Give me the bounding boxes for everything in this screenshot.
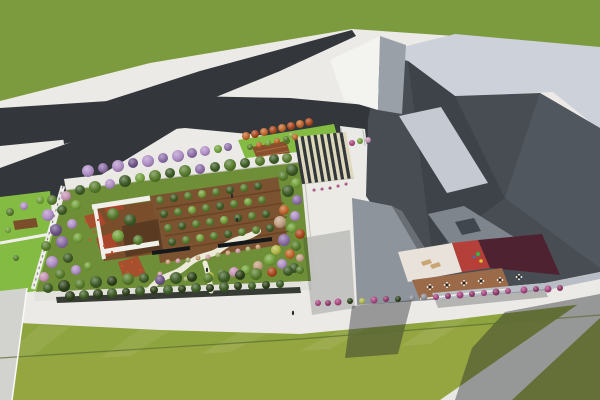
tree	[345, 183, 348, 186]
tree	[224, 159, 236, 171]
playground-item	[479, 259, 483, 263]
tree	[13, 255, 19, 261]
tree	[119, 175, 131, 187]
tree	[296, 266, 304, 274]
tree	[135, 173, 145, 183]
tree	[198, 190, 206, 198]
tree	[267, 267, 277, 277]
tree	[329, 187, 332, 190]
tree	[156, 196, 164, 204]
table-chair	[448, 284, 450, 286]
tree	[210, 232, 218, 240]
tree	[107, 288, 117, 298]
tree	[325, 300, 331, 306]
tree	[247, 144, 253, 150]
tree	[170, 194, 178, 202]
table-chair	[501, 279, 503, 281]
tree	[347, 298, 353, 304]
tree	[170, 272, 182, 284]
person-marker	[206, 268, 208, 272]
tree	[216, 253, 221, 258]
tree	[246, 247, 251, 252]
tree	[240, 184, 248, 192]
tree	[75, 279, 85, 289]
tree	[61, 191, 71, 201]
tree	[165, 168, 175, 178]
tree	[176, 259, 181, 264]
tree	[150, 286, 158, 294]
flower-dot	[85, 221, 87, 223]
tree	[71, 265, 81, 275]
tree	[234, 282, 242, 290]
tree	[216, 202, 224, 210]
tree	[248, 212, 256, 220]
tree	[236, 249, 241, 254]
tree	[105, 179, 115, 189]
flower-dot	[121, 265, 123, 267]
tree	[42, 209, 54, 221]
tree	[58, 280, 70, 292]
tree	[200, 146, 210, 156]
tree	[469, 291, 475, 297]
flower-dot	[111, 251, 113, 253]
table-chair	[463, 284, 465, 286]
tree	[107, 276, 117, 286]
tree	[255, 156, 265, 166]
tree	[266, 224, 274, 232]
table	[480, 280, 483, 283]
tree	[158, 153, 168, 163]
tree	[93, 289, 103, 299]
tree	[313, 189, 316, 192]
tree	[265, 140, 271, 146]
tree	[282, 185, 294, 197]
tree	[133, 235, 143, 245]
tree	[224, 143, 232, 151]
tree	[278, 171, 288, 181]
tree	[409, 295, 415, 301]
tree	[260, 128, 268, 136]
table-chair	[518, 278, 520, 280]
table-chair	[497, 279, 499, 281]
tree	[226, 186, 234, 194]
flower-dot	[103, 245, 105, 247]
tree	[149, 170, 161, 182]
tree	[186, 258, 191, 263]
tree	[481, 290, 487, 296]
tree	[172, 150, 184, 162]
tree	[242, 132, 250, 140]
tree	[359, 298, 365, 304]
tree	[219, 282, 229, 292]
tree	[287, 122, 295, 130]
tree	[269, 126, 277, 134]
table-chair	[480, 282, 482, 284]
tree	[278, 234, 290, 246]
tree	[195, 164, 205, 174]
tree	[365, 137, 371, 143]
tree	[203, 273, 213, 283]
tree	[315, 300, 321, 306]
tree	[168, 238, 176, 246]
table-chair	[461, 282, 463, 284]
tree	[250, 268, 262, 280]
tree	[292, 195, 302, 205]
playground-item	[476, 252, 480, 256]
tree	[218, 271, 230, 283]
tree	[235, 270, 245, 280]
tree	[276, 280, 284, 288]
tree	[20, 202, 28, 210]
flower-dot	[127, 271, 129, 273]
table	[446, 284, 449, 287]
tree	[47, 195, 57, 205]
table	[518, 276, 521, 279]
tree	[90, 276, 102, 288]
tree	[46, 256, 58, 268]
tree	[178, 222, 186, 230]
architectural-render-canvas	[0, 0, 600, 400]
tree	[163, 285, 173, 295]
tree	[187, 272, 197, 282]
tree	[142, 155, 154, 167]
tree	[174, 208, 182, 216]
tree	[184, 192, 192, 200]
tree	[278, 124, 286, 132]
tree	[139, 273, 149, 283]
tree	[321, 188, 324, 191]
flower-dot	[89, 239, 91, 241]
tree	[135, 286, 145, 296]
table-chair	[463, 280, 465, 282]
flower-dot	[139, 269, 141, 271]
tree	[43, 283, 53, 293]
tree	[433, 294, 439, 300]
tree	[445, 293, 451, 299]
tree	[283, 266, 293, 276]
tree	[178, 285, 186, 293]
tree	[286, 164, 298, 176]
tree	[337, 185, 340, 188]
tree	[256, 142, 262, 148]
tree	[533, 286, 539, 292]
tree	[73, 233, 83, 243]
tree	[287, 223, 297, 233]
tree	[274, 138, 280, 144]
table-chair	[520, 276, 522, 278]
table-chair	[499, 281, 501, 283]
table	[429, 286, 432, 289]
table-chair	[516, 276, 518, 278]
table-chair	[444, 284, 446, 286]
tree	[84, 262, 92, 270]
tree	[285, 249, 295, 259]
tree	[206, 255, 211, 260]
tree	[196, 256, 201, 261]
tree	[230, 200, 238, 208]
table-chair	[465, 282, 467, 284]
tree	[192, 220, 200, 228]
tree	[335, 299, 342, 306]
tree	[244, 198, 252, 206]
tree	[196, 234, 204, 242]
tree	[206, 284, 214, 292]
tree	[305, 118, 313, 126]
tree	[349, 140, 355, 146]
tree	[240, 158, 250, 168]
tree	[251, 130, 259, 138]
tree	[395, 296, 401, 302]
tree	[254, 182, 262, 190]
tree	[256, 245, 261, 250]
tree	[166, 260, 171, 265]
tree	[98, 163, 108, 173]
tree	[291, 241, 301, 251]
tree	[36, 196, 44, 204]
table-chair	[480, 278, 482, 280]
tree	[264, 254, 276, 266]
tree	[248, 282, 256, 290]
table	[499, 279, 502, 282]
tree	[71, 200, 81, 210]
tree	[238, 228, 246, 236]
tree	[164, 224, 172, 232]
tree	[279, 205, 289, 215]
tree	[545, 286, 552, 293]
tree	[112, 160, 124, 172]
tree	[296, 120, 304, 128]
tree	[39, 272, 49, 282]
tree	[269, 154, 279, 164]
tree	[160, 210, 168, 218]
tree	[283, 136, 289, 142]
tree	[505, 288, 511, 294]
tree	[290, 211, 300, 221]
tree	[357, 138, 363, 144]
flower-dot	[131, 261, 133, 263]
tree	[79, 290, 89, 300]
table-chair	[446, 286, 448, 288]
tree	[202, 204, 210, 212]
tree	[6, 208, 14, 216]
table-chair	[429, 284, 431, 286]
tree	[421, 294, 428, 301]
table-chair	[431, 286, 433, 288]
tree	[57, 205, 67, 215]
tree	[371, 297, 378, 304]
render-viewport	[0, 0, 600, 400]
table-chair	[499, 277, 501, 279]
tree	[107, 208, 119, 220]
tree	[291, 178, 301, 188]
tree	[220, 216, 228, 224]
tree	[82, 165, 94, 177]
tree	[262, 210, 270, 218]
tree	[206, 218, 214, 226]
table-chair	[482, 280, 484, 282]
tree	[224, 230, 232, 238]
tree	[457, 292, 464, 299]
table-chair	[478, 280, 480, 282]
tree	[63, 253, 73, 263]
tree	[521, 287, 528, 294]
tree	[282, 153, 292, 163]
table	[463, 282, 466, 285]
tree	[296, 254, 304, 262]
tree	[179, 165, 191, 177]
table-chair	[427, 286, 429, 288]
tree	[122, 273, 134, 285]
tree	[5, 227, 11, 233]
tree	[226, 251, 231, 256]
tree	[210, 162, 220, 172]
flower-dot	[93, 231, 95, 233]
tree	[292, 134, 298, 140]
tree	[295, 229, 305, 239]
tree	[41, 241, 51, 251]
tree	[493, 289, 500, 296]
tree	[557, 285, 563, 291]
tree	[252, 226, 260, 234]
tree	[274, 216, 286, 228]
table-chair	[518, 274, 520, 276]
tree	[188, 206, 196, 214]
table-chair	[446, 282, 448, 284]
tree	[258, 196, 266, 204]
tree	[128, 158, 138, 168]
tree	[67, 219, 77, 229]
playground-item	[473, 256, 476, 259]
podium-side-gray	[378, 36, 406, 114]
tree	[191, 283, 201, 293]
tree	[182, 236, 190, 244]
tree	[271, 245, 281, 255]
person-marker	[231, 194, 233, 198]
tree	[75, 185, 85, 195]
tree	[55, 269, 65, 279]
tree	[56, 236, 68, 248]
tree	[155, 275, 165, 285]
flower-dot	[97, 219, 99, 221]
tree	[214, 145, 222, 153]
person-marker	[236, 218, 238, 222]
tree	[187, 148, 197, 158]
tree	[124, 214, 136, 226]
tree	[65, 291, 75, 301]
tree	[112, 230, 124, 242]
tree	[262, 281, 270, 289]
tree	[122, 288, 130, 296]
tree	[89, 181, 101, 193]
tree	[50, 224, 62, 236]
tree	[383, 296, 389, 302]
person-marker	[292, 311, 294, 315]
playground-item	[474, 261, 478, 265]
table-chair	[429, 288, 431, 290]
tree	[212, 188, 220, 196]
